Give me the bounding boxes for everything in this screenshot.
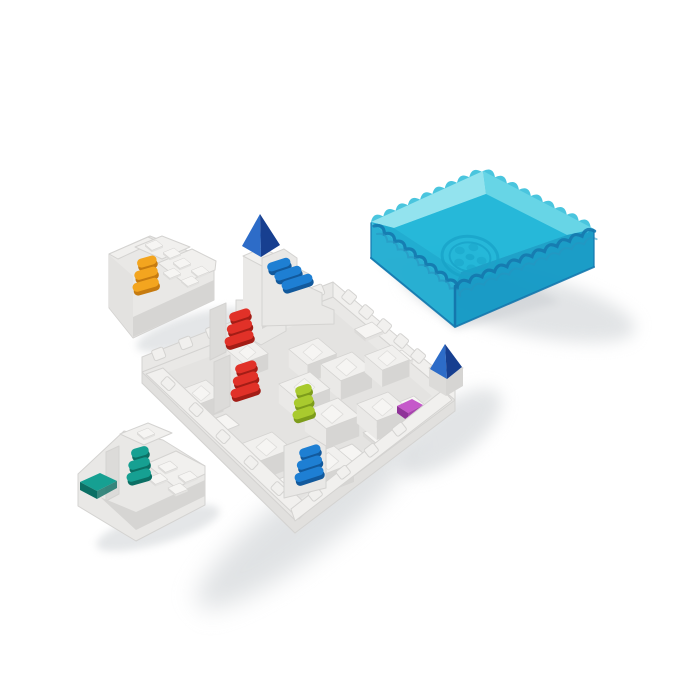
stair-side-wall: [210, 303, 226, 360]
product-photo: [0, 0, 700, 700]
bottom-blue-staircase: [284, 436, 330, 498]
photo-canvas: [0, 0, 700, 700]
pyramid-face-left: [242, 214, 261, 257]
stair-side-wall: [214, 355, 230, 414]
pyramid-face-right: [260, 214, 280, 257]
corner-tower: [429, 344, 463, 396]
